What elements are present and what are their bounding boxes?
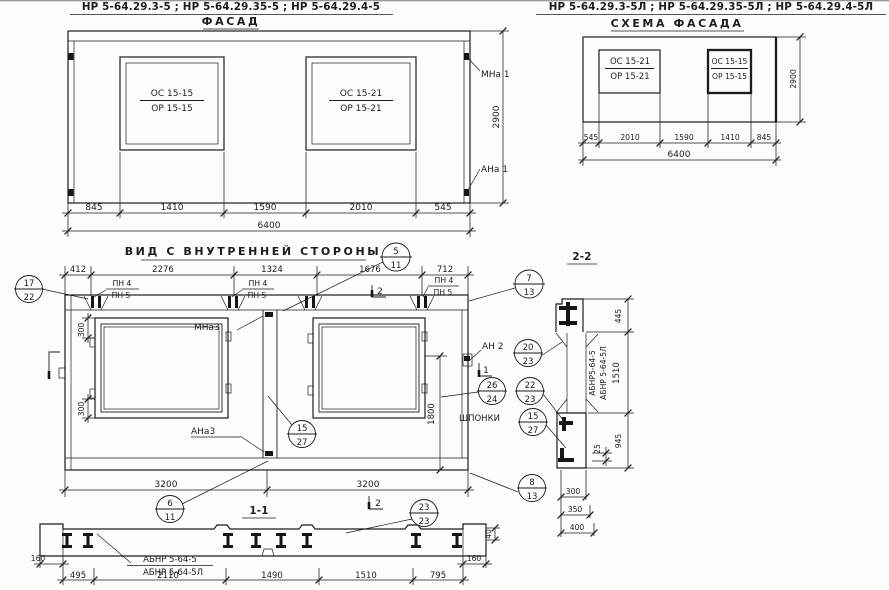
sec22-top-channel-profile bbox=[559, 302, 577, 326]
callout-bottom: 13 bbox=[524, 288, 535, 298]
callout-6-11: 6 11 bbox=[155, 496, 185, 524]
callout-17-22: 17 22 bbox=[14, 276, 44, 304]
inner-window-right bbox=[308, 318, 427, 418]
callout-top: 26 bbox=[487, 381, 498, 391]
inner-dim-1800: 1800 bbox=[427, 403, 437, 425]
sec22-dim-1510: 1510 bbox=[612, 362, 622, 384]
flag-2-number: 2 bbox=[377, 287, 383, 297]
sec22-mark-b: АБНР 5-64-5Л bbox=[599, 346, 608, 400]
drawing-sheet: НР 5-64.29.3-5 ; НР 5-64.29.35-5 ; НР 5-… bbox=[0, 0, 889, 590]
section-flag-2-bottom: 2 bbox=[369, 496, 383, 509]
inner-label-mna3: МНа3 bbox=[194, 323, 220, 333]
sec22-dim-445: 445 bbox=[614, 309, 623, 324]
section-2-2-title: 2-2 bbox=[572, 251, 591, 263]
callout-top: 15 bbox=[297, 424, 308, 434]
callout-bottom: 11 bbox=[391, 261, 402, 271]
inner-title: ВИД С ВНУТРЕННЕЙ СТОРОНЫ bbox=[125, 245, 382, 258]
inner-label-leaders bbox=[191, 316, 481, 452]
sec22-dim-945: 945 bbox=[614, 434, 623, 449]
inner-left-hook bbox=[59, 368, 65, 378]
facade-window-right-mark-top: ОС 15-21 bbox=[340, 89, 382, 99]
sec11-dim-1490: 1490 bbox=[261, 571, 283, 581]
callout-top: 7 bbox=[526, 274, 531, 284]
inner-dim-300-bottom: 300 bbox=[77, 402, 86, 417]
section-1-1: 1-1 АБНР 5-64-5 АБНР 5-64-5Л 495 2110 14… bbox=[31, 505, 500, 585]
facade-window-left-mark-top: ОС 15-15 bbox=[151, 89, 193, 99]
schema-dim-1590: 1590 bbox=[674, 133, 693, 142]
callout-top: 23 bbox=[419, 503, 430, 513]
sec11-dim-495: 495 bbox=[70, 571, 86, 581]
sec11-dim-160-right: 160 bbox=[467, 554, 482, 563]
schema-dim-2010: 2010 bbox=[620, 133, 639, 142]
schema-view: НР 5-64.29.3-5Л ; НР 5-64.29.35-5Л ; НР … bbox=[536, 1, 886, 166]
schema-dim-height: 2900 bbox=[789, 69, 798, 88]
sec22-dim-300: 300 bbox=[566, 487, 581, 496]
inner-bottom-dim-lines bbox=[59, 470, 474, 497]
facade-header: НР 5-64.29.3-5 ; НР 5-64.29.35-5 ; НР 5-… bbox=[82, 1, 380, 13]
sec11-strip-details bbox=[63, 529, 463, 556]
callout-26-24: 26 24 bbox=[477, 378, 507, 406]
facade-dim-845: 845 bbox=[85, 203, 102, 213]
inner-side-dims bbox=[82, 313, 447, 470]
section-flag-1-right: 1 bbox=[479, 363, 492, 377]
schema-dim-1410: 1410 bbox=[720, 133, 739, 142]
callout-top: 8 bbox=[529, 478, 534, 488]
sec22-dim-350: 350 bbox=[568, 505, 583, 514]
schema-title: СХЕМА ФАСАДА bbox=[611, 17, 744, 30]
schema-dim-total: 6400 bbox=[668, 150, 691, 160]
schema-dim-545: 545 bbox=[584, 133, 599, 142]
callout-15-27-shponki: 15 27 bbox=[518, 409, 548, 437]
inner-dim-1676: 1676 bbox=[359, 265, 381, 275]
schema-window-right-mark-bottom: ОР 15-15 bbox=[712, 72, 747, 81]
callout-bottom: 11 bbox=[165, 513, 176, 523]
section-2-2: 2-2 АБНР5-64-5 АБНР 5-64-5Л 445 1510 945… bbox=[556, 251, 634, 537]
facade-label-ana1: АНа 1 bbox=[481, 165, 508, 175]
sec11-dim-2110: 2110 bbox=[157, 571, 179, 581]
callout-20-23: 20 23 bbox=[513, 340, 543, 368]
inner-dim-2276: 2276 bbox=[152, 265, 174, 275]
callout-top: 15 bbox=[528, 412, 539, 422]
inner-dim-300-top: 300 bbox=[77, 323, 86, 338]
inner-dim-3200-left: 3200 bbox=[155, 480, 178, 490]
callout-22-23: 22 23 bbox=[515, 378, 545, 406]
flag-1-number: 1 bbox=[483, 366, 489, 376]
inner-label-ana3: АНа3 bbox=[191, 427, 215, 437]
pn4-label: ПН 4 bbox=[435, 276, 454, 285]
schema-window-left-mark-top: ОС 15-21 bbox=[610, 57, 650, 67]
facade-dim-1590: 1590 bbox=[254, 203, 277, 213]
inner-panel-outline bbox=[65, 295, 468, 470]
facade-dim-1410: 1410 bbox=[161, 203, 184, 213]
facade-corner-embeds bbox=[69, 53, 470, 196]
callout-bottom: 24 bbox=[487, 395, 498, 405]
callout-bottom: 27 bbox=[528, 426, 539, 436]
sec11-strip-outline bbox=[40, 524, 486, 556]
callout-bottom: 27 bbox=[297, 438, 308, 448]
inner-panel-bands bbox=[65, 295, 468, 470]
flag-2-number: 2 bbox=[375, 499, 381, 509]
schema-dim-845: 845 bbox=[757, 133, 772, 142]
inner-window-left bbox=[90, 318, 231, 418]
callout-bottom: 22 bbox=[24, 293, 35, 303]
callout-top: 17 bbox=[24, 279, 35, 289]
pn5-label: ПН 5 bbox=[434, 288, 453, 297]
sec11-dim-795: 795 bbox=[430, 571, 446, 581]
inner-dim-3200-right: 3200 bbox=[357, 480, 380, 490]
callout-23-23: 23 23 bbox=[409, 500, 439, 528]
schema-window-right: ОС 15-15 ОР 15-15 bbox=[708, 50, 751, 93]
callout-5-11: 5 11 bbox=[380, 243, 412, 271]
sec22-bottom-channel-profile bbox=[558, 417, 574, 462]
schema-header: НР 5-64.29.3-5Л ; НР 5-64.29.35-5Л ; НР … bbox=[549, 1, 874, 13]
schema-window-left-mark-bottom: ОР 15-21 bbox=[610, 72, 649, 82]
facade-title: ФАСАД bbox=[202, 15, 261, 28]
section-flag-1-left bbox=[49, 352, 60, 379]
pn5-label: ПН 5 bbox=[248, 291, 267, 300]
inner-pn-labels: ПН 4 ПН 5 ПН 4 ПН 5 ПН 4 ПН 5 bbox=[94, 276, 459, 300]
sec22-dim-25: 25 bbox=[593, 444, 602, 454]
inner-view: ВИД С ВНУТРЕННЕЙ СТОРОНЫ 412 bbox=[49, 245, 504, 509]
inner-dim-1324: 1324 bbox=[261, 265, 283, 275]
facade-view: НР 5-64.29.3-5 ; НР 5-64.29.35-5 ; НР 5-… bbox=[62, 1, 510, 237]
facade-label-mna1: МНа 1 bbox=[481, 70, 510, 80]
facade-dim-total: 6400 bbox=[258, 221, 281, 231]
facade-window-right: ОС 15-21 ОР 15-21 bbox=[306, 57, 416, 150]
callouts: 5 11 17 22 7 13 20 23 26 24 22 23 15 27 … bbox=[14, 243, 567, 533]
inner-dim-712: 712 bbox=[437, 265, 453, 275]
facade-dim-545: 545 bbox=[434, 203, 451, 213]
callout-top: 5 bbox=[393, 247, 398, 257]
callout-top: 22 bbox=[525, 381, 536, 391]
sec11-dim-40: 40 bbox=[484, 529, 493, 539]
facade-window-left-mark-bottom: ОР 15-15 bbox=[151, 104, 193, 114]
sec22-mark-a: АБНР5-64-5 bbox=[588, 350, 597, 396]
inner-center-rib bbox=[263, 310, 277, 458]
inner-label-an2: АН 2 bbox=[482, 342, 504, 352]
facade-window-right-mark-bottom: ОР 15-21 bbox=[340, 104, 382, 114]
sec22-dim-400: 400 bbox=[570, 523, 585, 532]
schema-window-right-mark-top: ОС 15-15 bbox=[712, 57, 748, 66]
inner-label-shponki: ШПОНКИ bbox=[459, 414, 500, 424]
section-1-1-title: 1-1 bbox=[249, 505, 268, 517]
pn4-label: ПН 4 bbox=[113, 279, 132, 288]
callout-top: 6 bbox=[167, 499, 172, 509]
facade-window-left: ОС 15-15 ОР 15-15 bbox=[120, 57, 224, 150]
panel-drawing: НР 5-64.29.3-5 ; НР 5-64.29.35-5 ; НР 5-… bbox=[0, 0, 889, 590]
callout-bottom: 23 bbox=[523, 357, 534, 367]
callout-8-13: 8 13 bbox=[517, 475, 547, 503]
callout-7-13: 7 13 bbox=[513, 270, 545, 298]
pn5-label: ПН 5 bbox=[112, 291, 131, 300]
sec11-dim-160-left: 160 bbox=[31, 554, 46, 563]
sec11-mark-a: АБНР 5-64-5 bbox=[143, 555, 197, 565]
inner-dim-412: 412 bbox=[70, 265, 86, 275]
facade-dim-height: 2900 bbox=[492, 105, 502, 128]
pn4-label: ПН 4 bbox=[249, 279, 268, 288]
callout-bottom: 23 bbox=[419, 517, 430, 527]
callout-bottom: 13 bbox=[527, 492, 538, 502]
callout-bottom: 23 bbox=[525, 395, 536, 405]
schema-window-left: ОС 15-21 ОР 15-21 bbox=[599, 50, 660, 93]
sec11-dim-1510: 1510 bbox=[355, 571, 377, 581]
sec11-channel-profiles bbox=[62, 533, 462, 548]
callout-top: 20 bbox=[523, 343, 534, 353]
facade-dim-2010: 2010 bbox=[350, 203, 373, 213]
